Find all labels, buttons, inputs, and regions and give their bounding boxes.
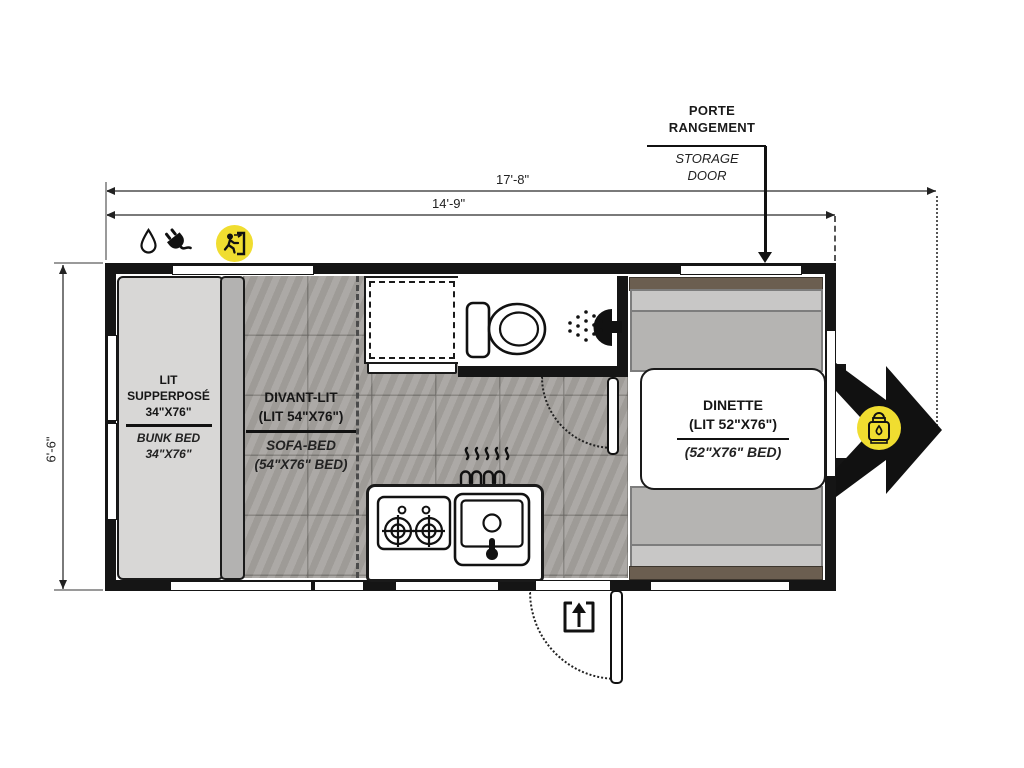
window xyxy=(650,581,790,591)
dimension-width: 6'-6" xyxy=(43,437,58,463)
extension-line-dashed xyxy=(834,216,836,261)
bunk-label-en: BUNK BED xyxy=(137,430,200,446)
bunk-label-fr: 34"X76" xyxy=(145,404,191,420)
entry-door-leaf xyxy=(610,590,623,684)
sofa-label-fr: DIVANT-LIT xyxy=(264,388,337,407)
label-divider xyxy=(677,438,789,441)
cabinet xyxy=(364,276,460,364)
extension-line xyxy=(54,589,103,591)
callout-arrow-line xyxy=(764,146,767,253)
callout-text-en: DOOR xyxy=(632,167,782,184)
entry-door-icon xyxy=(558,596,600,638)
window xyxy=(314,581,364,591)
dimension-arrow xyxy=(59,265,67,274)
label-divider xyxy=(246,430,356,433)
bunk-label-fr: LIT xyxy=(160,372,178,388)
dimension-arrow xyxy=(59,580,67,589)
bathroom-door-leaf xyxy=(607,377,619,455)
extension-line xyxy=(105,182,107,260)
bunk-label-fr: SUPPERPOSÉ xyxy=(127,388,210,404)
bathroom-wall-bottom xyxy=(458,366,628,377)
window xyxy=(826,330,836,477)
extension-line xyxy=(54,262,103,264)
window xyxy=(170,581,312,591)
bunk-bed-label: LIT SUPPERPOSÉ 34"X76" BUNK BED 34"X76" xyxy=(117,372,220,462)
dinette-label-en: (52"X76" BED) xyxy=(685,443,782,462)
sofa-label-en: (54"X76" BED) xyxy=(254,455,347,474)
entry-door-opening xyxy=(535,580,611,591)
furnace-icon xyxy=(453,446,517,486)
dimension-line-box xyxy=(106,214,835,216)
sofa-bed-label: DIVANT-LIT (LIT 54"X76") SOFA-BED (54"X7… xyxy=(237,388,365,474)
callout-text-fr: RANGEMENT xyxy=(632,119,792,136)
propane-tank-icon xyxy=(857,406,901,450)
callout-arrow-head xyxy=(758,252,772,263)
window xyxy=(395,581,499,591)
window xyxy=(107,335,117,421)
power-plug-icon xyxy=(162,227,192,257)
dimension-box-length: 14'-9" xyxy=(428,196,469,211)
storage-door-callout-en: STORAGE DOOR xyxy=(632,150,782,184)
storage-door-opening xyxy=(680,265,802,275)
dimension-arrow xyxy=(927,187,936,195)
dinette-cabinet-bottom xyxy=(629,566,823,580)
trailer-floorplan: 17'-8" 14'-9" 6'-6" PORTE RANGEMENT STOR… xyxy=(0,0,1024,768)
dimension-arrow xyxy=(106,211,115,219)
dinette-bench xyxy=(630,486,823,548)
bunk-label-en: 34"X76" xyxy=(145,446,191,462)
dimension-overall-length: 17'-8" xyxy=(492,172,533,187)
callout-underline xyxy=(647,145,766,147)
emergency-exit-icon xyxy=(216,225,253,262)
dinette-label-fr: DINETTE xyxy=(703,396,763,415)
shower-head-icon xyxy=(560,300,622,356)
callout-text-en: STORAGE xyxy=(632,150,782,167)
cabinet-counter-edge xyxy=(367,362,457,374)
dimension-arrow xyxy=(106,187,115,195)
window xyxy=(107,423,117,520)
dinette-table: DINETTE (LIT 52"X76") (52"X76" BED) xyxy=(640,368,826,490)
dinette-bench xyxy=(630,310,823,372)
storage-door-callout: PORTE RANGEMENT xyxy=(632,102,792,136)
water-drop-icon xyxy=(138,228,159,255)
cabinet-dashed-outline xyxy=(369,281,455,359)
callout-text-fr: PORTE xyxy=(632,102,792,119)
toilet-icon xyxy=(464,296,550,364)
sofa-label-en: SOFA-BED xyxy=(266,436,336,455)
stove-burners-icon xyxy=(366,484,538,576)
extension-line-dotted xyxy=(936,196,938,426)
window xyxy=(172,265,314,275)
dimension-line-overall xyxy=(106,190,936,192)
label-divider xyxy=(126,424,212,427)
sofa-label-fr: (LIT 54"X76") xyxy=(259,407,344,426)
dinette-label-fr: (LIT 52"X76") xyxy=(689,415,777,434)
dimension-line-width xyxy=(62,265,64,589)
